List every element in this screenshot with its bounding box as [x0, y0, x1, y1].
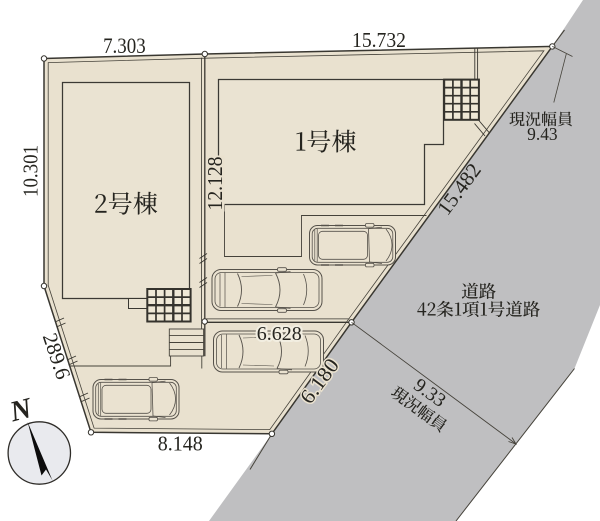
svg-text:9.43: 9.43 — [527, 124, 558, 144]
svg-text:10.301: 10.301 — [19, 145, 43, 197]
svg-text:6.628: 6.628 — [257, 324, 302, 345]
svg-text:7.303: 7.303 — [103, 33, 146, 58]
svg-text:12.128: 12.128 — [203, 157, 227, 211]
svg-text:N: N — [6, 392, 36, 429]
svg-text:15.732: 15.732 — [352, 28, 406, 52]
svg-text:8.148: 8.148 — [158, 431, 203, 455]
